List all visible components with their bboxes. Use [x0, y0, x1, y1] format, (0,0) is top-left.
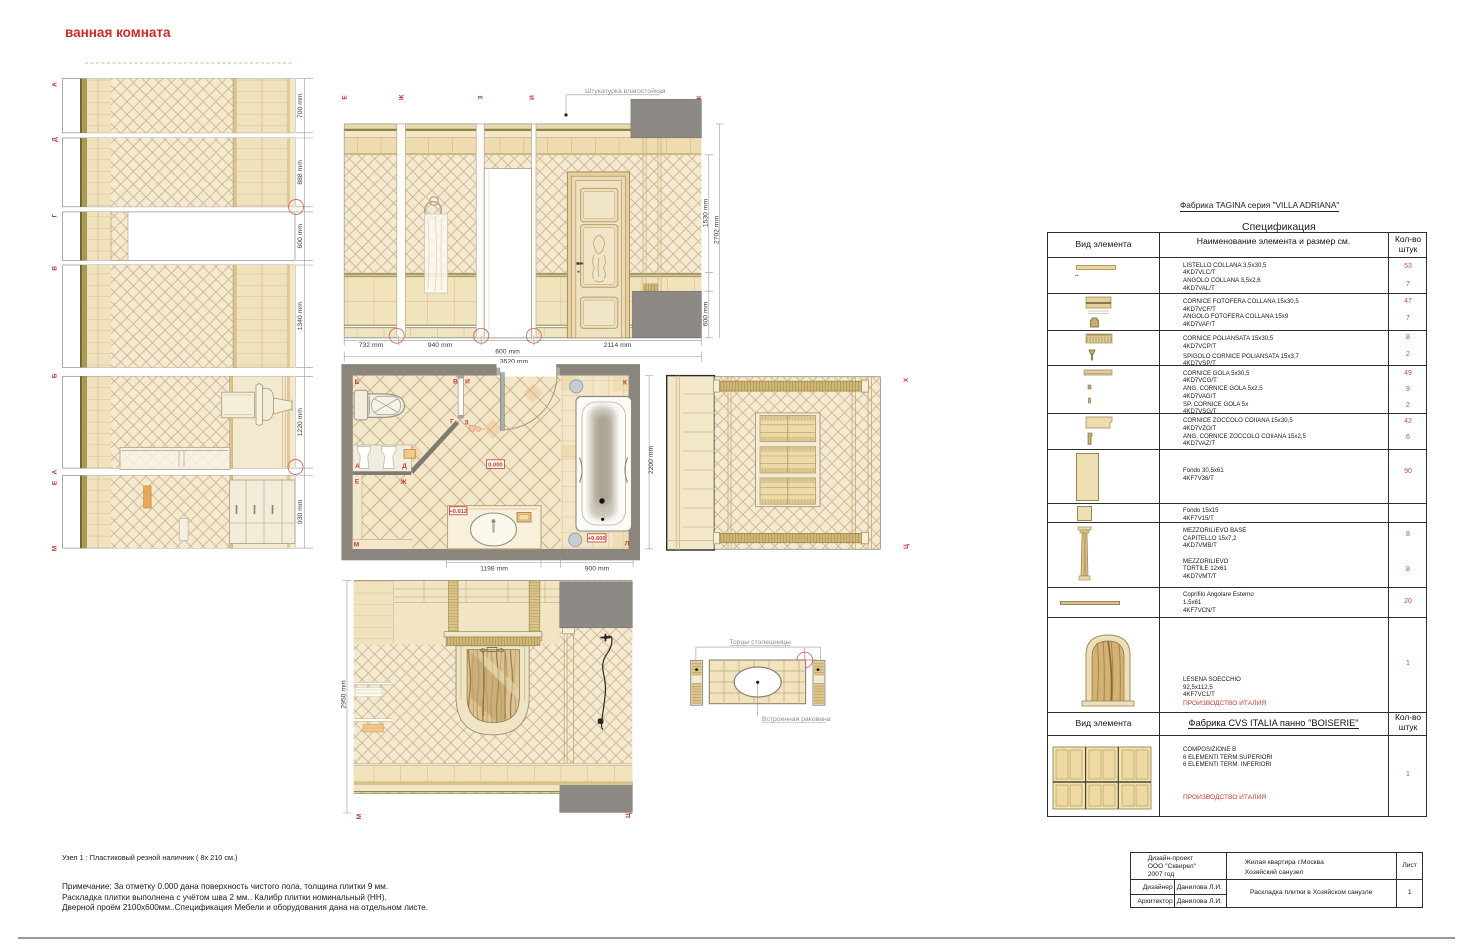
- svg-text:600 mm: 600 mm: [495, 349, 520, 356]
- svg-text:Штукатурка влагостойкая: Штукатурка влагостойкая: [585, 87, 666, 95]
- svg-text:Д: Д: [402, 463, 407, 470]
- svg-text:Е: Е: [52, 480, 59, 485]
- svg-text:М: М: [354, 542, 359, 549]
- svg-text:2702 mm: 2702 mm: [714, 216, 721, 245]
- svg-text:2950 mm: 2950 mm: [340, 680, 347, 709]
- svg-text:1530 mm: 1530 mm: [703, 199, 710, 228]
- svg-text:1220 mm: 1220 mm: [297, 408, 304, 437]
- svg-text:Х: Х: [903, 377, 910, 382]
- svg-text:Ц: Ц: [903, 544, 910, 549]
- svg-text:930 mm: 930 mm: [297, 499, 304, 524]
- svg-text:Ж: Ж: [399, 94, 406, 101]
- svg-text:+0.600: +0.600: [588, 536, 606, 542]
- svg-text:Торцы столешницы: Торцы столешницы: [729, 639, 791, 646]
- svg-text:940 mm: 940 mm: [428, 342, 453, 349]
- svg-text:900 mm: 900 mm: [585, 566, 610, 573]
- svg-text:Встроенная раковина: Встроенная раковина: [762, 716, 831, 723]
- svg-text:И: И: [465, 379, 470, 386]
- svg-text:В: В: [453, 379, 458, 386]
- svg-text:700 mm: 700 mm: [297, 93, 304, 118]
- svg-text:З: З: [464, 420, 468, 427]
- svg-text:Ж: Ж: [400, 479, 407, 486]
- svg-text:600 mm: 600 mm: [297, 224, 304, 249]
- svg-text:Е: Е: [342, 95, 349, 100]
- svg-text:А: А: [355, 463, 360, 470]
- svg-text:И: И: [529, 95, 536, 100]
- svg-text:Г: Г: [52, 213, 59, 217]
- svg-text:600 mm: 600 mm: [703, 301, 710, 326]
- svg-text:Б: Б: [355, 379, 360, 386]
- svg-text:М: М: [356, 814, 363, 819]
- svg-text:+0.612: +0.612: [449, 509, 467, 515]
- svg-text:Л: Л: [625, 541, 630, 548]
- svg-text:Г: Г: [450, 419, 454, 426]
- svg-text:Д: Д: [52, 137, 59, 142]
- svg-text:0.000: 0.000: [488, 462, 503, 468]
- svg-text:К: К: [696, 95, 703, 99]
- svg-text:1198 mm: 1198 mm: [480, 566, 508, 573]
- svg-text:732 mm: 732 mm: [359, 342, 384, 349]
- svg-text:Ц: Ц: [625, 813, 632, 818]
- svg-text:А: А: [52, 469, 59, 474]
- svg-text:М: М: [52, 546, 59, 551]
- svg-text:2200 mm: 2200 mm: [648, 446, 655, 475]
- svg-text:В: В: [52, 266, 59, 271]
- svg-text:2114 mm: 2114 mm: [604, 342, 632, 349]
- svg-text:888 mm: 888 mm: [297, 160, 304, 185]
- svg-text:К: К: [623, 380, 627, 387]
- svg-text:1340 mm: 1340 mm: [297, 302, 304, 331]
- svg-text:Е: Е: [355, 479, 360, 486]
- svg-text:З: З: [478, 95, 485, 99]
- svg-text:Б: Б: [52, 373, 59, 378]
- svg-text:А: А: [52, 82, 59, 87]
